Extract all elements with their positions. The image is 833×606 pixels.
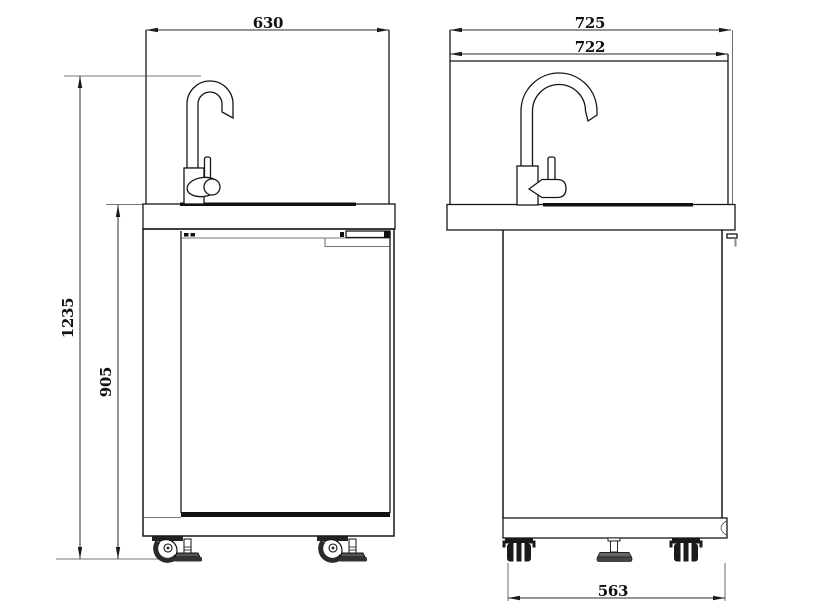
side-view: 725 722 xyxy=(447,14,737,601)
dimension-label-cabinet-height: 905 xyxy=(97,367,115,397)
faucet-side xyxy=(517,73,597,205)
dimension-cabinet-height: 905 xyxy=(97,205,118,559)
caster-wheel xyxy=(507,544,531,562)
hinge-block-2 xyxy=(191,233,196,237)
dimension-front-width: 630 xyxy=(146,14,389,32)
technical-drawing: 630 1235 905 xyxy=(0,0,833,606)
dimension-label-base-depth: 563 xyxy=(598,582,628,600)
hinge-block-1 xyxy=(184,233,189,237)
door-handle-bar xyxy=(346,231,390,238)
foot-base xyxy=(339,557,367,562)
foot-pad xyxy=(175,553,200,557)
caster-slit xyxy=(689,543,692,562)
door-handle-recess xyxy=(325,238,390,247)
faucet-handle-cap xyxy=(204,179,220,195)
caster-tab xyxy=(533,541,536,548)
dimension-base-depth: 563 xyxy=(508,563,725,601)
faucet-handle-stem xyxy=(205,157,211,179)
caster-slit xyxy=(514,543,517,562)
caster-plate xyxy=(672,539,700,544)
foot-pad xyxy=(598,553,632,558)
drawing-canvas: 630 1235 905 xyxy=(0,0,833,606)
faucet-spout xyxy=(187,81,233,168)
dimension-label-overall-depth: 725 xyxy=(575,14,605,32)
caster-axle xyxy=(332,547,335,550)
leveling-foot-center xyxy=(597,538,632,562)
foot-stem xyxy=(349,539,356,553)
foot-pad xyxy=(340,553,365,557)
foot-cap xyxy=(608,538,620,541)
dimension-overall-height: 1235 xyxy=(59,76,80,559)
dimension-top-depth: 722 xyxy=(450,38,728,56)
dimension-label-top-depth: 722 xyxy=(575,38,605,56)
caster-slit xyxy=(681,543,684,562)
caster-side-right xyxy=(670,539,703,563)
caster-side-left xyxy=(503,539,536,563)
dimension-label-overall-height: 1235 xyxy=(59,298,77,339)
door-handle-tick xyxy=(340,232,344,237)
foot-stem xyxy=(611,541,618,552)
caster-front-left xyxy=(152,537,202,562)
dimension-label-front-width: 630 xyxy=(253,14,283,32)
faucet-spout xyxy=(521,73,597,167)
foot-base xyxy=(174,557,202,562)
foot-stem xyxy=(184,539,191,553)
caster-plate xyxy=(505,539,533,544)
faucet-handle-stem xyxy=(548,157,555,180)
caster-tab xyxy=(503,541,506,548)
caster-slit xyxy=(522,543,525,562)
caster-front-right xyxy=(317,537,367,562)
door-bottom-edge xyxy=(181,512,390,517)
caster-tab xyxy=(700,541,703,548)
dimension-overall-depth: 725 xyxy=(450,14,731,32)
foot-base xyxy=(597,557,632,562)
countertop-side xyxy=(447,205,735,231)
caster-tab xyxy=(670,541,673,548)
caster-axle xyxy=(167,547,170,550)
countertop-front xyxy=(143,204,395,229)
sink-edge-front xyxy=(180,203,356,207)
sink-edge-side xyxy=(543,203,693,207)
caster-wheel xyxy=(674,544,698,562)
faucet-front xyxy=(184,81,233,204)
front-view: 630 1235 905 xyxy=(56,14,395,562)
door-handle-end xyxy=(384,232,390,238)
door-handle-profile xyxy=(727,234,737,238)
plinth-side xyxy=(503,518,727,538)
